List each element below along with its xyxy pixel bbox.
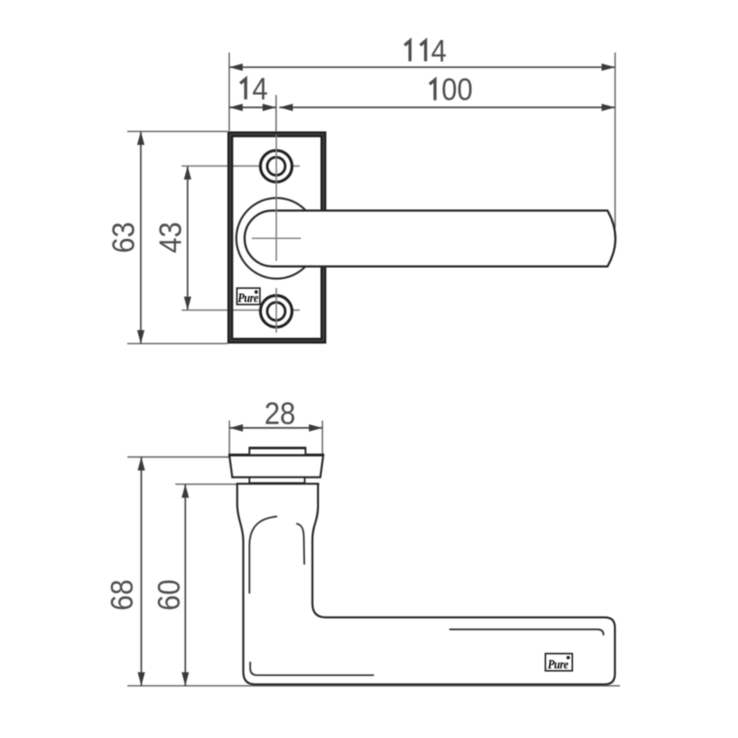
svg-text:28: 28 (264, 397, 295, 432)
svg-text:60: 60 (152, 579, 187, 610)
svg-text:Pure: Pure (548, 658, 568, 672)
svg-text:43: 43 (154, 222, 189, 253)
svg-text:68: 68 (105, 579, 140, 610)
svg-text:63: 63 (107, 222, 142, 253)
svg-text:Pure: Pure (238, 291, 258, 305)
